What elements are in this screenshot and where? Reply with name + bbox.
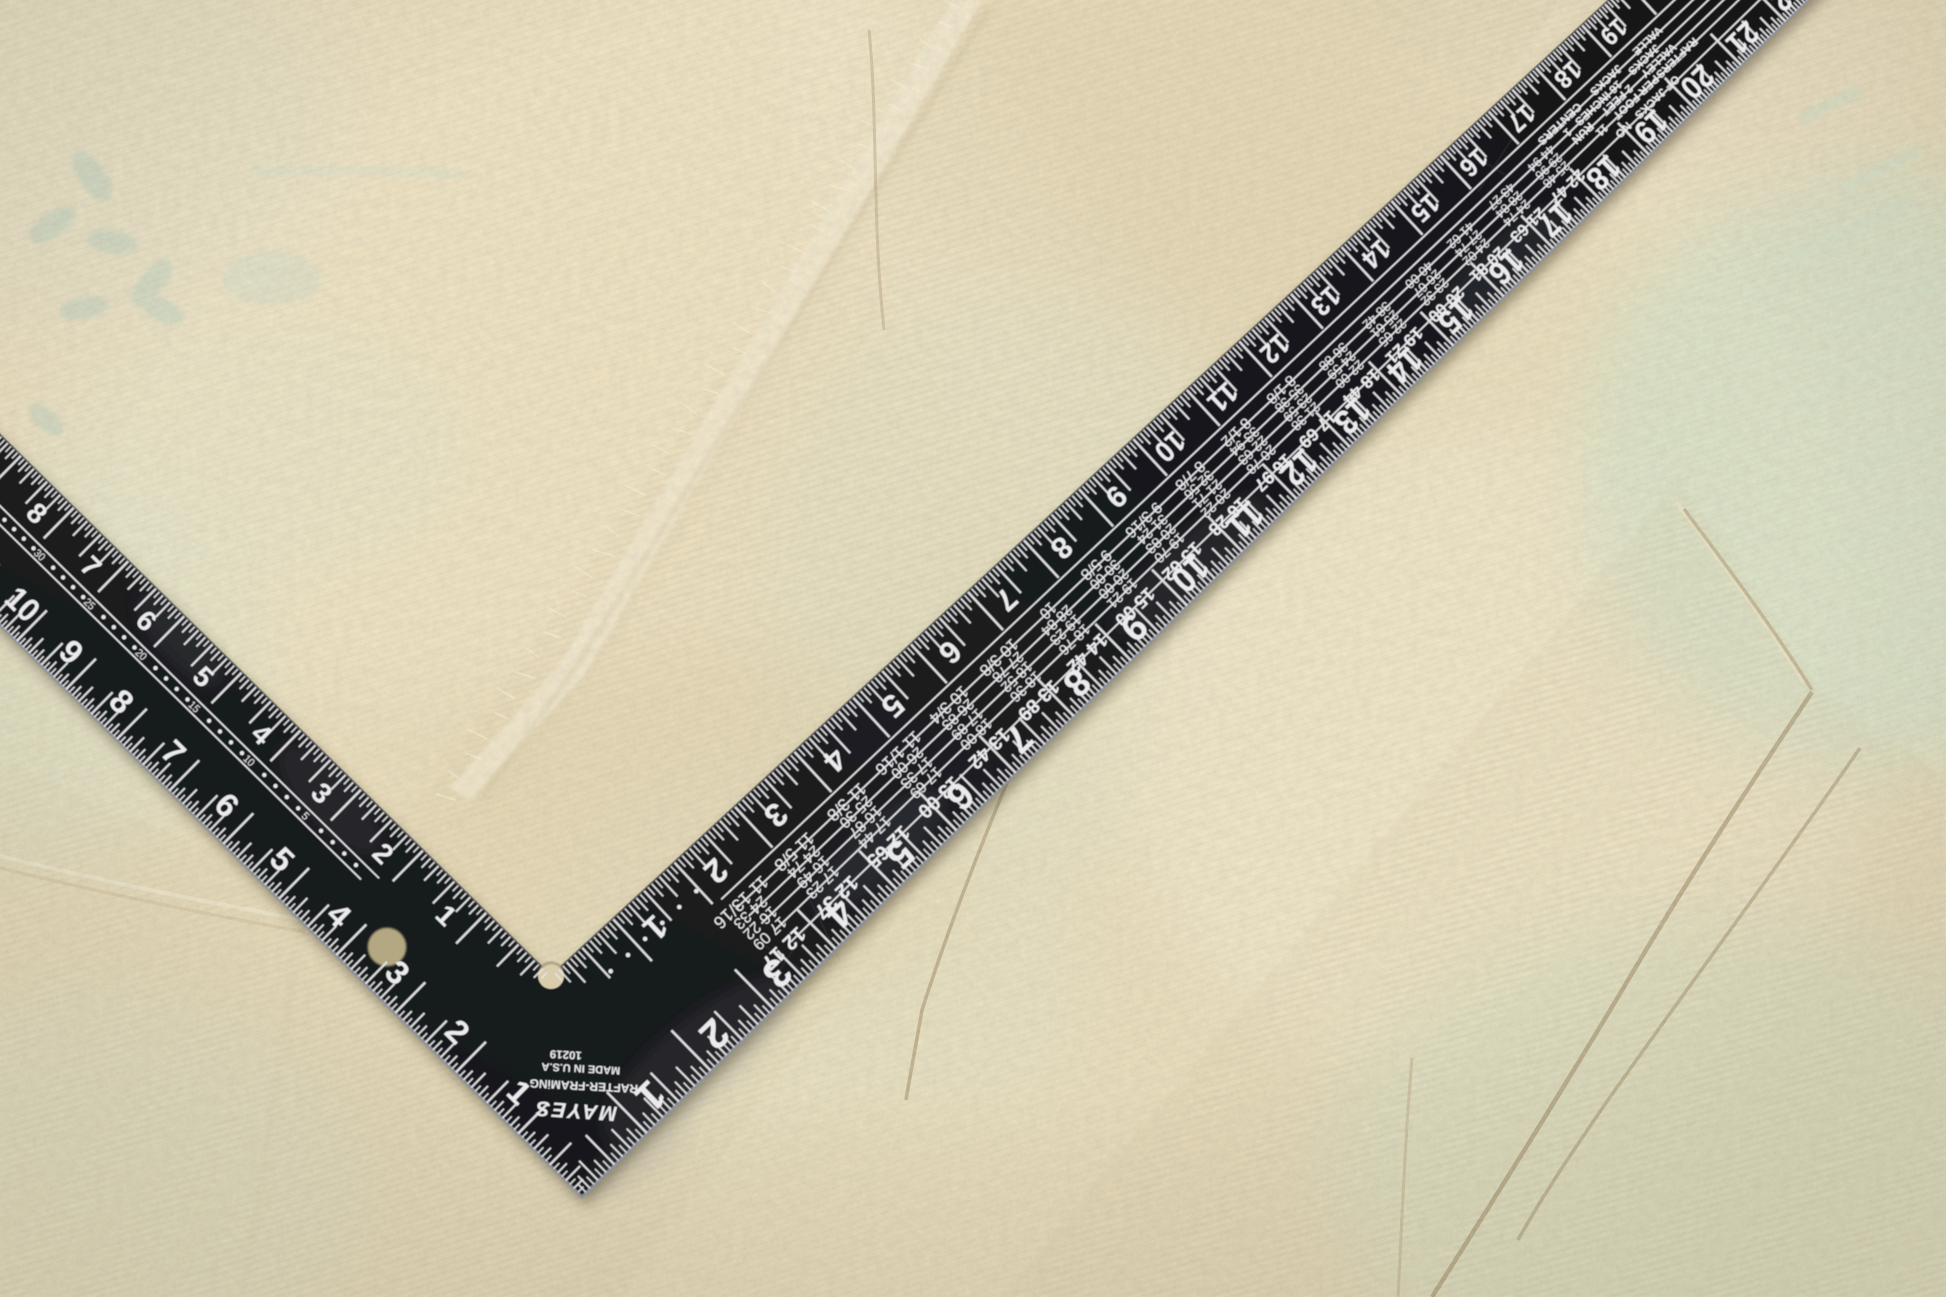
svg-text:10219: 10219: [550, 1047, 583, 1061]
